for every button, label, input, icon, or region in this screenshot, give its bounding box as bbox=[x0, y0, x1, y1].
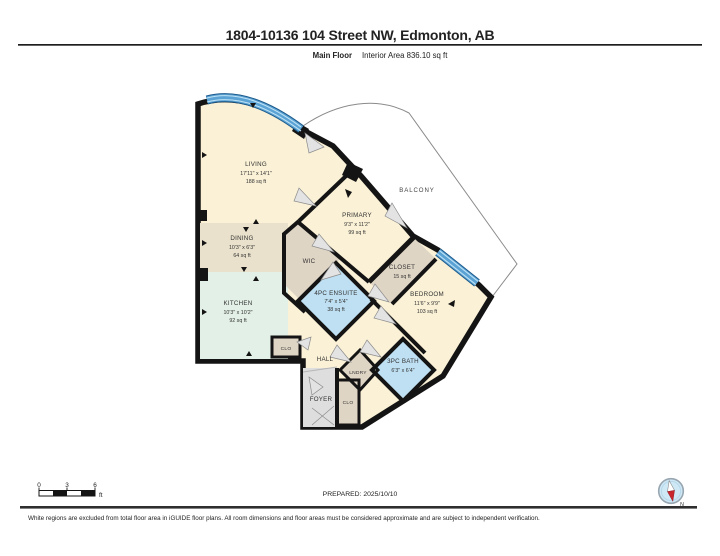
prepared-date: PREPARED: 2025/10/10 bbox=[323, 491, 398, 498]
floor-plan-page: 1804-10136 104 Street NW, Edmonton, AB M… bbox=[0, 0, 720, 556]
room-living-label: LIVING bbox=[245, 161, 267, 168]
scale-bar: 0 3 6 ft bbox=[37, 482, 103, 499]
room-clo-hall-label: CLO bbox=[281, 346, 292, 352]
svg-text:17'11" x 14'1": 17'11" x 14'1" bbox=[240, 171, 272, 177]
room-wic-label: WIC bbox=[303, 258, 316, 265]
header-divider bbox=[18, 44, 702, 46]
svg-text:6'3" x 6'4": 6'3" x 6'4" bbox=[391, 368, 414, 374]
room-dining-label: DINING bbox=[230, 235, 253, 242]
room-closet-label: CLOSET bbox=[389, 264, 415, 271]
room-bath-label: 3PC BATH bbox=[387, 358, 419, 365]
room-ensuite-label: 4PC ENSUITE bbox=[314, 290, 357, 297]
room-balcony-label: BALCONY bbox=[399, 187, 434, 194]
room-lndry-label: LNDRY bbox=[349, 370, 367, 376]
svg-text:188 sq ft: 188 sq ft bbox=[246, 179, 267, 185]
floor-plan-canvas: 1804-10136 104 Street NW, Edmonton, AB M… bbox=[0, 0, 720, 556]
room-clo-foyer-label: CLO bbox=[343, 400, 354, 406]
room-hall-label: HALL bbox=[317, 356, 334, 363]
room-primary-label: PRIMARY bbox=[342, 212, 372, 219]
svg-text:9'3" x 11'2": 9'3" x 11'2" bbox=[344, 222, 370, 228]
footer-disclaimer: White regions are excluded from total fl… bbox=[28, 515, 540, 522]
svg-text:92 sq ft: 92 sq ft bbox=[229, 318, 247, 324]
svg-text:38 sq ft: 38 sq ft bbox=[327, 307, 345, 313]
svg-text:103 sq ft: 103 sq ft bbox=[417, 309, 438, 315]
svg-text:64 sq ft: 64 sq ft bbox=[233, 253, 251, 259]
room-bedroom-label: BEDROOM bbox=[410, 291, 444, 298]
floor-label: Main Floor bbox=[313, 51, 352, 60]
svg-text:11'6" x 9'9": 11'6" x 9'9" bbox=[414, 301, 440, 307]
scale-unit-label: ft bbox=[99, 492, 103, 499]
page-title: 1804-10136 104 Street NW, Edmonton, AB bbox=[226, 27, 495, 43]
svg-text:10'3" x 10'2": 10'3" x 10'2" bbox=[223, 310, 252, 316]
svg-text:15 sq ft: 15 sq ft bbox=[393, 274, 411, 280]
room-foyer-label: FOYER bbox=[310, 396, 333, 403]
svg-text:10'3" x 6'3": 10'3" x 6'3" bbox=[229, 245, 255, 251]
svg-text:7'4" x 5'4": 7'4" x 5'4" bbox=[324, 299, 347, 305]
footer-divider bbox=[20, 506, 697, 509]
compass-icon: N bbox=[659, 479, 684, 508]
interior-area-label: Interior Area 836.10 sq ft bbox=[362, 51, 448, 60]
svg-text:99 sq ft: 99 sq ft bbox=[348, 230, 366, 236]
room-kitchen-label: KITCHEN bbox=[224, 300, 253, 307]
